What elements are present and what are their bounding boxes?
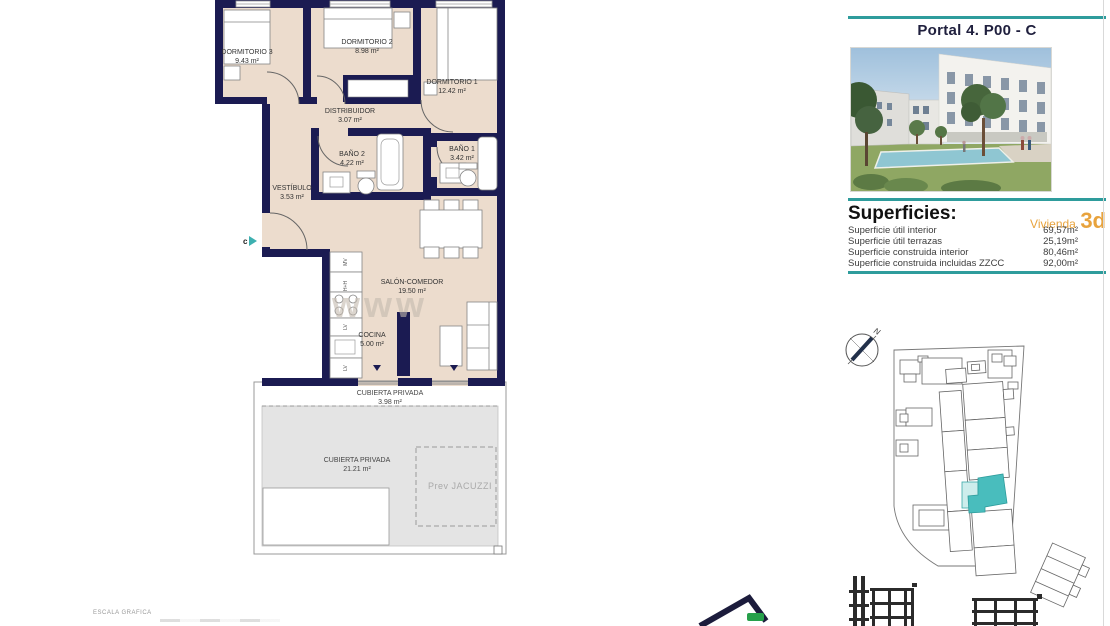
page-edge-line [1103,0,1104,626]
divider-top [848,16,1106,19]
divider-bottom [848,271,1106,274]
watermark: www [332,284,428,326]
compass-icon [846,334,878,366]
room-label-bano-2: BAÑO 2 4.22 m² [339,150,365,168]
section-elevation-left [849,576,917,626]
kitchen-unit-label-lv2: LV [343,358,349,378]
entrance-marker: c [243,236,257,246]
room-label-vestibulo: VESTÍBULO 3.53 m² [272,184,311,202]
terrace-door-arrow-right [450,365,458,371]
entrance-label: c [243,237,247,246]
developer-logo [640,580,820,626]
superficies-heading: Superficies: [848,203,957,225]
scale-label: ESCALA GRAFICA [93,610,152,616]
room-label-cocina: COCINA 5.00 m² [358,331,385,349]
room-label-dormitorio-1: DORMITORIO 1 12.42 m² [426,78,477,96]
room-label-dormitorio-3: DORMITORIO 3 9.43 m² [221,48,272,66]
room-label-bano-1: BAÑO 1 3.42 m² [449,145,475,163]
superficie-row-construida-zzcc: Superficie construida incluidas ZZCC 92,… [848,258,1078,269]
room-label-cubierta-strip: CUBIERTA PRIVADA 3.98 m² [357,389,424,407]
kitchen-unit-label-mv: MV [343,252,349,272]
room-label-cubierta-main: CUBIERTA PRIVADA 21.21 m² [324,456,391,474]
room-label-distribuidor: DISTRIBUIDOR 3.07 m² [325,107,375,125]
entrance-arrow-icon [249,236,257,246]
divider-mid [848,198,1106,201]
jacuzzi-label: Prev JACUZZI [428,481,492,491]
portal-title: Portal 4. P00 - C [848,22,1106,39]
site-plan-svg [840,318,1110,626]
render-image [850,47,1052,192]
superficie-row-construida-interior: Superficie construida interior 80,46m² [848,247,1078,258]
scale-bar [160,619,280,622]
section-elevation-right [972,594,1042,626]
superficie-row-util-terrazas: Superficie útil terrazas 25,19m² [848,236,1078,247]
superficie-row-util-interior: Superficie útil interior 69,57m² [848,225,1078,236]
terrace-door-arrow-left [373,365,381,371]
room-label-dormitorio-2: DORMITORIO 2 8.98 m² [341,38,392,56]
